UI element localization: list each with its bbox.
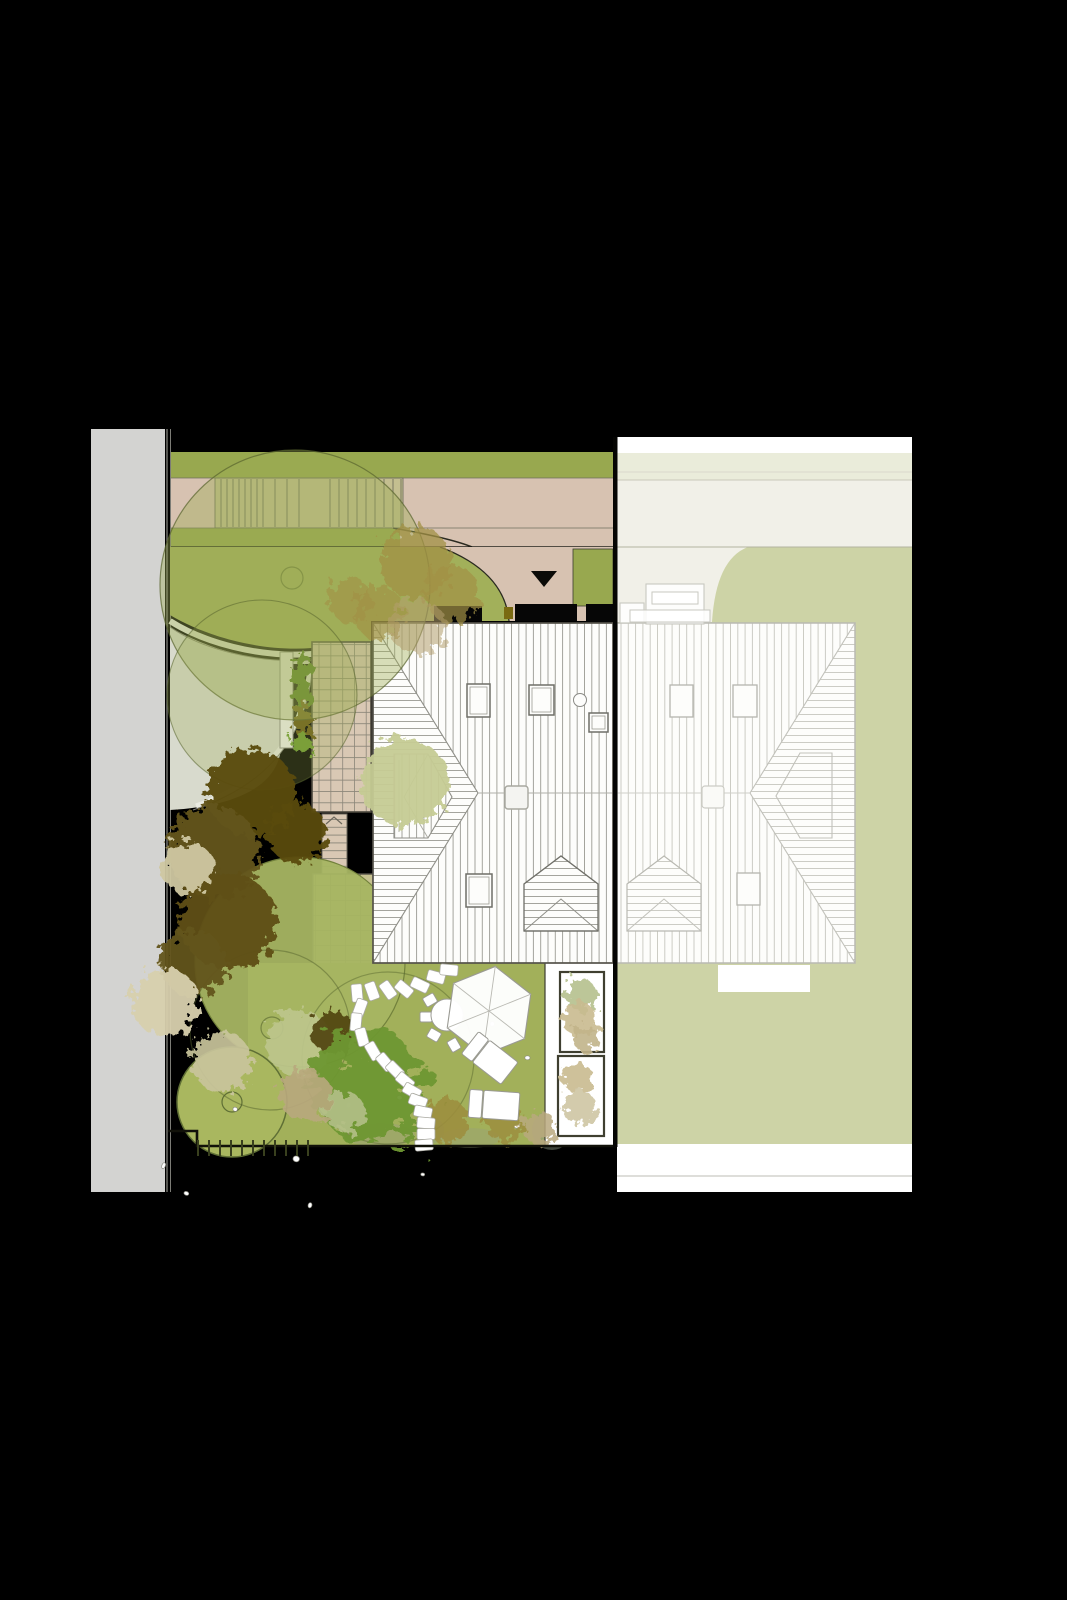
tree-canopy-blob	[563, 1063, 593, 1093]
chimney-faded	[702, 786, 724, 808]
faded-verge-band	[617, 453, 912, 480]
tree-canopy-blob	[192, 1032, 252, 1092]
skylight	[670, 685, 693, 717]
gravel-pebble	[292, 1155, 300, 1162]
faded-top-white-band	[617, 437, 912, 453]
entry-box	[652, 592, 698, 604]
sun-lounger	[468, 1089, 520, 1120]
site-plan-drawing	[0, 0, 1067, 1600]
gravel-pebble	[183, 1191, 189, 1196]
lounger-back	[468, 1089, 483, 1118]
stepping-stone	[440, 964, 459, 977]
plot-divider-line	[613, 437, 618, 1147]
faded-terrace-notch	[718, 965, 810, 992]
stepping-stone	[417, 1117, 436, 1130]
stepping-stone	[417, 1129, 435, 1140]
tree-canopy-blob	[131, 968, 199, 1036]
faded-drive-band	[617, 480, 912, 547]
tree-canopy-blob	[162, 842, 214, 894]
roof-vent	[574, 694, 587, 707]
site-plan-canvas	[0, 0, 1067, 1600]
tree-canopy-blob	[360, 738, 448, 826]
tree-canopy-blob	[280, 1070, 332, 1122]
wall-block	[586, 604, 615, 622]
tree-canopy-blob	[291, 733, 311, 753]
tree-canopy-blob	[572, 1025, 598, 1051]
tree-canopy-blob	[563, 1091, 597, 1125]
tree-canopy-blob	[328, 578, 372, 622]
skylight	[737, 873, 760, 905]
skylight	[529, 685, 554, 715]
chair	[420, 1012, 432, 1022]
tree-canopy-blob	[390, 599, 446, 655]
chimney	[505, 786, 528, 809]
road	[91, 429, 171, 1192]
gravel-pebble	[307, 1202, 312, 1208]
tree-canopy-blob	[325, 1092, 365, 1132]
wall-block	[515, 604, 577, 621]
gravel-pebble	[525, 1056, 530, 1060]
gravel-pebble	[421, 1173, 425, 1176]
skylight	[466, 874, 492, 907]
lounger-seat	[482, 1090, 520, 1120]
tree-canopy-blob	[267, 803, 327, 863]
building-roof-faded	[613, 584, 855, 992]
gate-post	[504, 607, 513, 619]
road-surface	[91, 429, 165, 1192]
skylight	[733, 685, 757, 717]
entry-box	[630, 610, 710, 622]
court-green-block	[573, 549, 613, 606]
tree-canopy-blob	[523, 1111, 557, 1145]
faded-bottom-white-band	[617, 1144, 912, 1192]
skylight	[467, 684, 490, 717]
